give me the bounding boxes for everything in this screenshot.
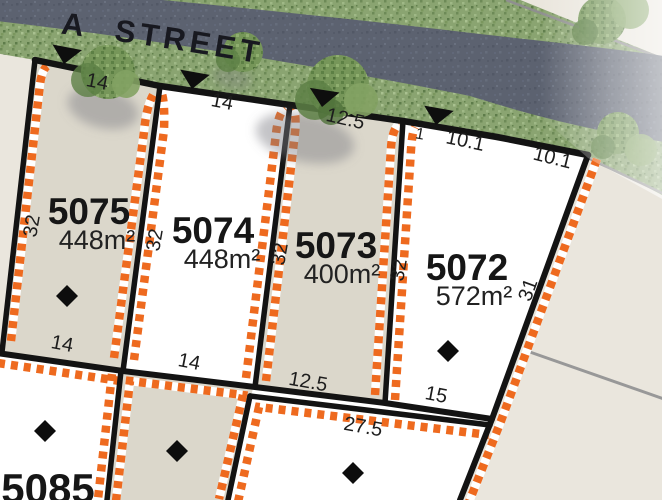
lot-area: 572m² [436,281,513,311]
lot-area: 400m² [304,259,381,289]
dimension-label: 32 [267,241,293,267]
lot-area: 448m² [184,244,261,274]
dimension-label: 14 [49,331,75,357]
estate-plan-map: 5075 448m² 5074 448m² 5073 400m² 5072 57… [0,0,662,500]
dimension-label: 32 [386,257,412,283]
dimension-label: 15 [423,382,449,408]
lot-area: 448m² [59,225,136,255]
dimension-label: 14 [84,69,110,95]
dimension-label: 14 [176,349,202,375]
dimension-label: 14 [209,89,235,115]
dimension-label: 32 [142,227,168,253]
lot-number: 5085 [1,465,94,500]
dimension-label: 32 [19,213,45,239]
